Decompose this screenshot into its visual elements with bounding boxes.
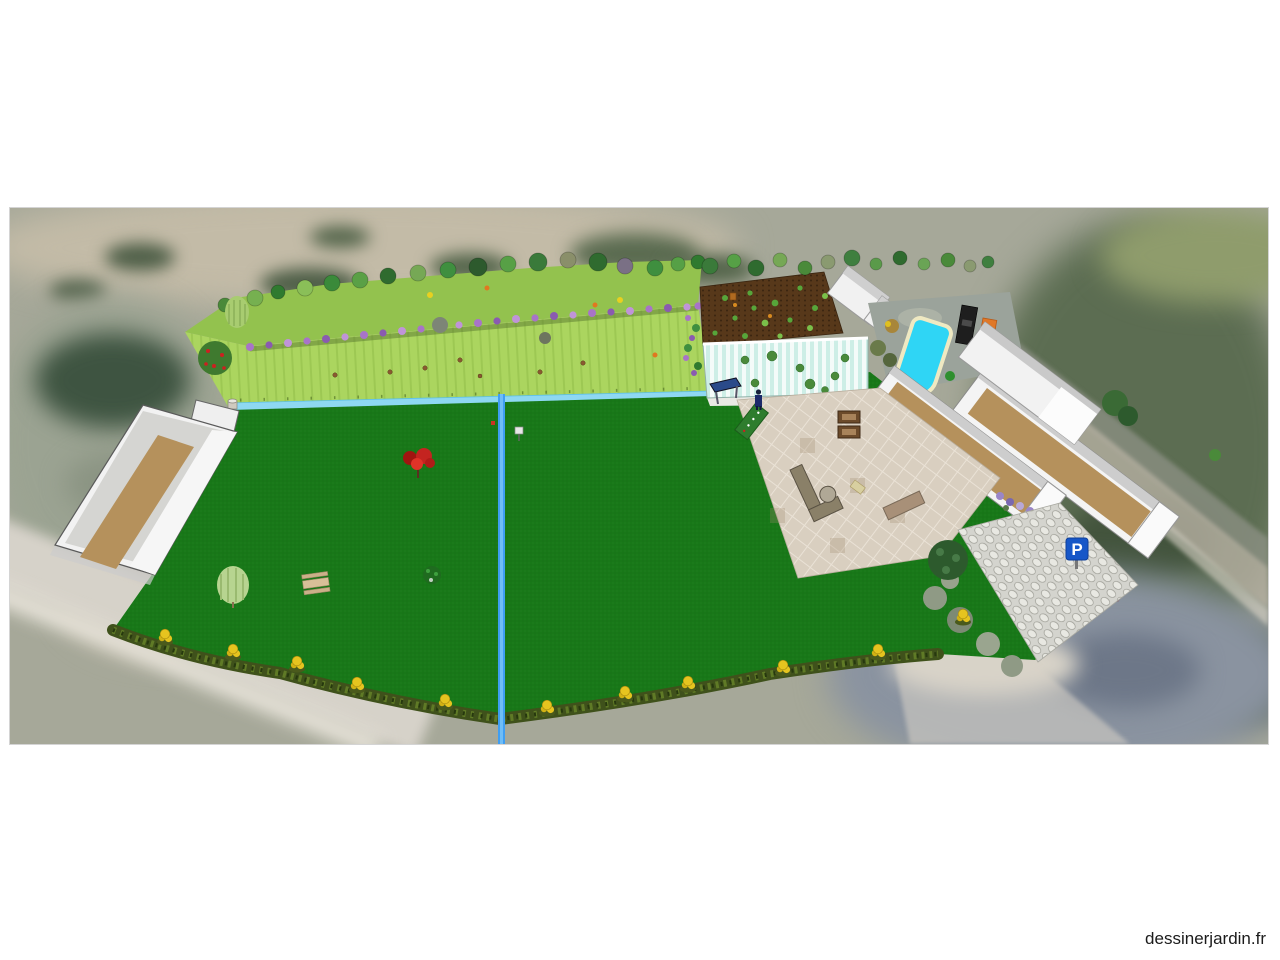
water-barrel[interactable]	[228, 399, 237, 409]
garden-planner-page: P dessinerjardin.fr	[0, 0, 1280, 960]
vegetable-garden[interactable]	[700, 272, 843, 346]
parking-sign-letter: P	[1071, 540, 1082, 559]
hillside-meadow[interactable]	[185, 260, 712, 410]
courtyard-tree[interactable]	[928, 540, 968, 580]
small-red-item[interactable]	[491, 421, 495, 425]
beehive[interactable]	[730, 293, 736, 300]
berry-bush[interactable]	[198, 341, 232, 375]
plan-canvas[interactable]: P	[10, 208, 1268, 744]
willow-tree-hillside[interactable]	[225, 296, 249, 328]
aerial-photo: P	[10, 208, 1268, 744]
stream-channel[interactable]	[498, 394, 505, 744]
evergreen-bush-lawn[interactable]	[423, 566, 441, 584]
watermark: dessinerjardin.fr	[1145, 929, 1266, 949]
picnic-table-lawn[interactable]	[302, 571, 331, 594]
person[interactable]	[755, 389, 762, 410]
